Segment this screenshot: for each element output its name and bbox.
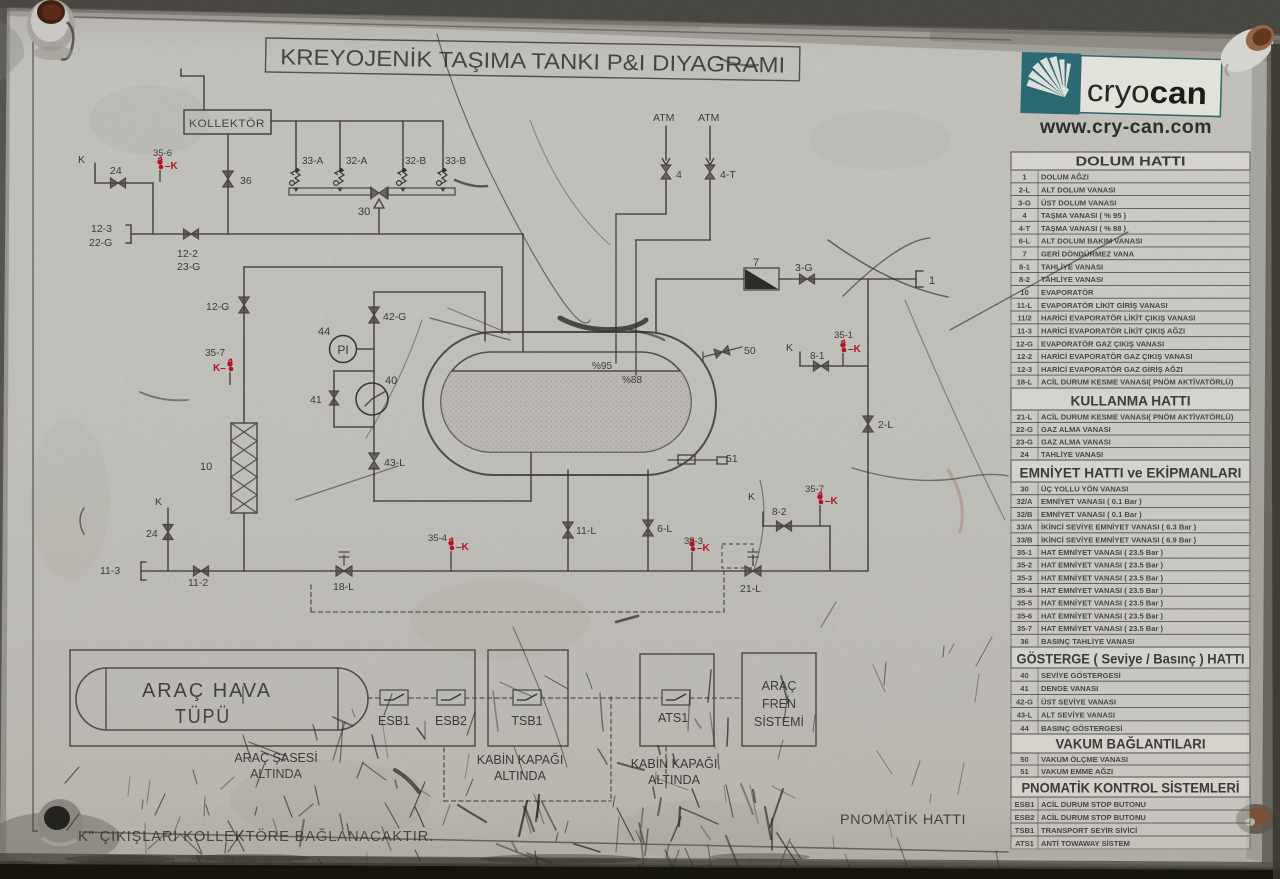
svg-text:İKİNCİ SEVİYE EMNİYET VANASI: İKİNCİ SEVİYE EMNİYET VANASI ( 6.3 Bar ) — [1041, 523, 1197, 532]
svg-text:EMNİYET HATTI ve EKİPMANLARI: EMNİYET HATTI ve EKİPMANLARI — [1020, 465, 1242, 481]
svg-text:TÜPÜ: TÜPÜ — [175, 706, 231, 728]
svg-text:24: 24 — [1020, 450, 1029, 459]
svg-text:44: 44 — [1020, 724, 1029, 733]
svg-text:12-2: 12-2 — [1017, 352, 1032, 361]
svg-text:33-A: 33-A — [302, 156, 323, 167]
svg-text:HAT EMNİYET VANASI ( 23.5 Bar: HAT EMNİYET VANASI ( 23.5 Bar ) — [1041, 561, 1164, 570]
svg-text:35-1: 35-1 — [1017, 548, 1033, 557]
svg-text:11-3: 11-3 — [100, 565, 120, 577]
svg-text:ARAÇ: ARAÇ — [762, 679, 797, 693]
svg-text:35-1: 35-1 — [834, 330, 853, 341]
svg-text:12-G: 12-G — [1016, 339, 1033, 348]
svg-text:GAZ ALMA VANASI: GAZ ALMA VANASI — [1041, 437, 1111, 446]
svg-text:VAKUM EMME AĞZI: VAKUM EMME AĞZI — [1041, 767, 1113, 776]
svg-text:K–: K– — [213, 363, 226, 374]
svg-text:SİSTEMİ: SİSTEMİ — [754, 715, 804, 729]
svg-text:HARİCİ EVAPORATÖR LİKİT ÇIKIŞ: HARİCİ EVAPORATÖR LİKİT ÇIKIŞ VANASI — [1041, 314, 1195, 323]
svg-text:32-B: 32-B — [405, 156, 426, 167]
svg-text:ALTINDA: ALTINDA — [494, 769, 547, 783]
svg-text:ATS1: ATS1 — [1015, 839, 1035, 848]
svg-text:4: 4 — [676, 169, 682, 181]
svg-text:35-4: 35-4 — [428, 533, 447, 544]
svg-text:PNOMATİK HATTI: PNOMATİK HATTI — [840, 810, 966, 827]
svg-text:ÜST SEVİYE VANASI: ÜST SEVİYE VANASI — [1041, 697, 1116, 706]
svg-text:TSB1: TSB1 — [1015, 826, 1035, 835]
svg-text:2-L: 2-L — [1019, 185, 1031, 194]
svg-text:K: K — [748, 491, 755, 503]
svg-text:21-L: 21-L — [1017, 412, 1033, 421]
svg-text:35-6: 35-6 — [1017, 611, 1032, 620]
svg-text:–K: –K — [697, 543, 711, 554]
svg-text:42-G: 42-G — [1016, 697, 1033, 706]
svg-text:ÜÇ YOLLU YÖN VANASI: ÜÇ YOLLU YÖN VANASI — [1041, 484, 1128, 493]
svg-text:32-A: 32-A — [346, 156, 367, 167]
svg-text:18-L: 18-L — [1017, 378, 1033, 387]
svg-text:12-3: 12-3 — [1017, 365, 1032, 374]
svg-text:TSB1: TSB1 — [511, 714, 542, 728]
svg-text:3-G: 3-G — [795, 262, 813, 274]
svg-text:HARİCİ EVAPORATÖR GAZ GİRİŞ AĞ: HARİCİ EVAPORATÖR GAZ GİRİŞ AĞZI — [1041, 365, 1183, 374]
svg-text:TAŞMA VANASI ( % 95 ): TAŞMA VANASI ( % 95 ) — [1041, 211, 1127, 220]
svg-text:EVAPORATÖR GAZ ÇIKIŞ VANASI: EVAPORATÖR GAZ ÇIKIŞ VANASI — [1041, 339, 1164, 348]
svg-text:ÜST DOLUM VANASI: ÜST DOLUM VANASI — [1041, 198, 1116, 207]
svg-text:8-2: 8-2 — [1019, 275, 1030, 284]
svg-text:cryocan: cryocan — [1086, 73, 1207, 111]
svg-text:–K: –K — [456, 542, 470, 553]
svg-text:ATM: ATM — [698, 112, 719, 124]
svg-text:22-G: 22-G — [1016, 425, 1033, 434]
svg-text:TAHLİYE VANASI: TAHLİYE VANASI — [1041, 262, 1103, 271]
svg-text:36: 36 — [240, 175, 252, 187]
svg-text:36: 36 — [1020, 637, 1028, 646]
svg-text:ARAÇ HAVA: ARAÇ HAVA — [142, 680, 272, 702]
svg-text:35-7: 35-7 — [205, 348, 225, 359]
svg-text:EVAPORATÖR LİKİT GİRİŞ VANASI: EVAPORATÖR LİKİT GİRİŞ VANASI — [1041, 301, 1168, 310]
svg-text:41: 41 — [1020, 684, 1029, 693]
svg-text:6-L: 6-L — [1019, 237, 1031, 246]
svg-text:K: K — [786, 342, 793, 354]
svg-text:TRANSPORT SEYİR SİVİCİ: TRANSPORT SEYİR SİVİCİ — [1041, 826, 1137, 835]
svg-text:TAHLİYE VANASI: TAHLİYE VANASI — [1041, 450, 1103, 459]
svg-text:PI: PI — [337, 343, 348, 357]
svg-text:33/B: 33/B — [1016, 535, 1033, 544]
svg-text:43-L: 43-L — [1017, 711, 1033, 720]
svg-text:HAT EMNİYET VANASI ( 23.5 Bar: HAT EMNİYET VANASI ( 23.5 Bar ) — [1041, 611, 1164, 620]
svg-text:1: 1 — [929, 275, 935, 287]
svg-text:23-G: 23-G — [177, 261, 200, 273]
svg-text:40: 40 — [1020, 671, 1028, 680]
svg-text:ESB2: ESB2 — [435, 714, 467, 728]
svg-text:ATM: ATM — [653, 112, 674, 124]
svg-text:30: 30 — [1020, 484, 1028, 493]
svg-text:51: 51 — [726, 453, 738, 465]
svg-text:12-G: 12-G — [206, 301, 229, 313]
svg-text:11/2: 11/2 — [1017, 314, 1031, 323]
svg-text:44: 44 — [318, 326, 330, 338]
svg-text:30: 30 — [358, 206, 370, 218]
svg-text:23-G: 23-G — [1016, 437, 1033, 446]
svg-text:GÖSTERGE ( Seviye / Basınç ): GÖSTERGE ( Seviye / Basınç ) HATTI — [1017, 652, 1245, 667]
svg-text:11-L: 11-L — [576, 525, 596, 537]
svg-text:ATS1: ATS1 — [658, 711, 688, 725]
svg-text:HAT EMNİYET VANASI ( 23.5 Bar: HAT EMNİYET VANASI ( 23.5 Bar ) — [1041, 573, 1164, 582]
svg-text:HAT EMNİYET VANASI ( 23.5 Bar: HAT EMNİYET VANASI ( 23.5 Bar ) — [1041, 624, 1164, 633]
svg-text:DOLUM HATTI: DOLUM HATTI — [1076, 154, 1186, 169]
svg-text:11-2: 11-2 — [188, 577, 208, 589]
svg-text:HAT EMNİYET VANASI ( 23.5 Bar: HAT EMNİYET VANASI ( 23.5 Bar ) — [1041, 599, 1164, 608]
svg-text:10: 10 — [200, 461, 212, 473]
svg-text:ACİL DURUM KESME VANASI( PNÖM: ACİL DURUM KESME VANASI( PNÖM AKTİVATÖRL… — [1041, 378, 1234, 387]
svg-text:DOLUM AĞZI: DOLUM AĞZI — [1041, 173, 1089, 182]
svg-text:–K: –K — [848, 344, 862, 355]
svg-text:%88: %88 — [622, 375, 642, 386]
svg-text:VAKUM ÖLÇME VANASI: VAKUM ÖLÇME VANASI — [1041, 755, 1128, 764]
svg-text:18-L: 18-L — [333, 581, 354, 593]
svg-text:ACİL DURUM STOP BUTONU: ACİL DURUM STOP BUTONU — [1041, 813, 1146, 822]
svg-text:51: 51 — [1020, 767, 1029, 776]
svg-text:32/B: 32/B — [1016, 510, 1033, 519]
svg-text:12-2: 12-2 — [177, 248, 198, 260]
svg-text:12-3: 12-3 — [91, 223, 112, 235]
svg-text:EMNİYET VANASI ( 0.1 Bar ): EMNİYET VANASI ( 0.1 Bar ) — [1041, 497, 1142, 506]
svg-text:HARİCİ EVAPORATÖR GAZ ÇIKIŞ VA: HARİCİ EVAPORATÖR GAZ ÇIKIŞ VANASI — [1041, 352, 1192, 361]
svg-text:HARİCİ EVAPORATÖR LİKİT ÇIKIŞ: HARİCİ EVAPORATÖR LİKİT ÇIKIŞ AĞZI — [1041, 326, 1185, 335]
svg-text:33/A: 33/A — [1016, 523, 1033, 532]
svg-text:35-4: 35-4 — [1017, 586, 1033, 595]
svg-text:ANTİ TOWAWAY SİSTEM: ANTİ TOWAWAY SİSTEM — [1041, 839, 1130, 848]
svg-text:11-3: 11-3 — [1017, 326, 1032, 335]
svg-text:PNOMATİK KONTROL SİSTEMLERİ: PNOMATİK KONTROL SİSTEMLERİ — [1022, 781, 1240, 796]
svg-text:7: 7 — [753, 257, 759, 269]
svg-text:24: 24 — [110, 165, 122, 177]
svg-text:%95: %95 — [592, 361, 612, 372]
svg-text:6-L: 6-L — [657, 523, 672, 535]
svg-text:42-G: 42-G — [383, 311, 406, 323]
svg-text:7: 7 — [1022, 250, 1026, 259]
svg-text:3-G: 3-G — [1018, 198, 1031, 207]
svg-text:www.cry-can.com: www.cry-can.com — [1039, 116, 1212, 138]
svg-text:VAKUM BAĞLANTILARI: VAKUM BAĞLANTILARI — [1056, 737, 1206, 752]
svg-text:EMNİYET VANASI ( 0.1 Bar ): EMNİYET VANASI ( 0.1 Bar ) — [1041, 510, 1142, 519]
svg-text:BASINÇ GÖSTERGESİ: BASINÇ GÖSTERGESİ — [1041, 724, 1122, 733]
svg-text:ESB2: ESB2 — [1015, 813, 1035, 822]
svg-text:50: 50 — [744, 345, 756, 357]
svg-text:DENGE VANASI: DENGE VANASI — [1041, 684, 1098, 693]
svg-text:32/A: 32/A — [1016, 497, 1033, 506]
svg-text:HAT EMNİYET VANASI ( 23.5 Bar: HAT EMNİYET VANASI ( 23.5 Bar ) — [1041, 548, 1164, 557]
svg-text:BASINÇ TAHLİYE VANASI: BASINÇ TAHLİYE VANASI — [1041, 637, 1134, 646]
svg-text:33-B: 33-B — [445, 156, 466, 167]
svg-text:ALT DOLUM VANASI: ALT DOLUM VANASI — [1041, 185, 1115, 194]
svg-text:35-2: 35-2 — [1017, 561, 1032, 570]
svg-text:İKİNCİ SEVİYE EMNİYET VANASI: İKİNCİ SEVİYE EMNİYET VANASI ( 6.9 Bar ) — [1041, 535, 1197, 544]
svg-text:35-5: 35-5 — [1017, 599, 1033, 608]
svg-text:ALT DOLUM BAKIM VANASI: ALT DOLUM BAKIM VANASI — [1041, 237, 1142, 246]
svg-text:41: 41 — [310, 394, 322, 406]
svg-text:SEVİYE GÖSTERGESİ: SEVİYE GÖSTERGESİ — [1041, 671, 1121, 680]
svg-text:K: K — [155, 496, 162, 508]
svg-text:24: 24 — [146, 528, 158, 540]
svg-text:EVAPORATÖR: EVAPORATÖR — [1041, 288, 1094, 297]
svg-text:FREN: FREN — [762, 697, 796, 711]
svg-text:8-2: 8-2 — [772, 507, 787, 518]
svg-text:ESB1: ESB1 — [1015, 800, 1036, 809]
svg-text:K: K — [78, 154, 85, 166]
svg-text:35-7: 35-7 — [1017, 624, 1032, 633]
svg-text:–K: –K — [825, 496, 839, 507]
svg-text:11-L: 11-L — [1017, 301, 1033, 310]
svg-text:22-G: 22-G — [89, 237, 112, 249]
svg-text:4-T: 4-T — [1019, 224, 1031, 233]
svg-text:ACİL DURUM KESME VANASI( PNÖM: ACİL DURUM KESME VANASI( PNÖM AKTİVATÖRL… — [1041, 412, 1234, 421]
svg-text:HAT EMNİYET VANASI ( 23.5 Bar: HAT EMNİYET VANASI ( 23.5 Bar ) — [1041, 586, 1164, 595]
svg-text:GAZ ALMA VANASI: GAZ ALMA VANASI — [1041, 425, 1111, 434]
svg-text:8-1: 8-1 — [810, 351, 825, 362]
svg-text:KULLANMA HATTI: KULLANMA HATTI — [1071, 394, 1191, 409]
svg-text:21-L: 21-L — [740, 583, 761, 595]
svg-text:8-1: 8-1 — [1019, 262, 1031, 271]
svg-text:4-T: 4-T — [720, 169, 736, 181]
svg-text:–K: –K — [165, 161, 179, 172]
svg-text:2-L: 2-L — [878, 419, 893, 431]
svg-text:35-3: 35-3 — [1017, 573, 1032, 582]
svg-text:50: 50 — [1020, 755, 1028, 764]
svg-text:TAHLİYE VANASI: TAHLİYE VANASI — [1041, 275, 1103, 284]
svg-text:ALT SEVİYE VANASI: ALT SEVİYE VANASI — [1041, 711, 1115, 720]
svg-text:TAŞMA VANASI ( % 88 ): TAŞMA VANASI ( % 88 ) — [1041, 224, 1127, 233]
svg-text:ACİL DURUM STOP BUTONU: ACİL DURUM STOP BUTONU — [1041, 800, 1146, 809]
